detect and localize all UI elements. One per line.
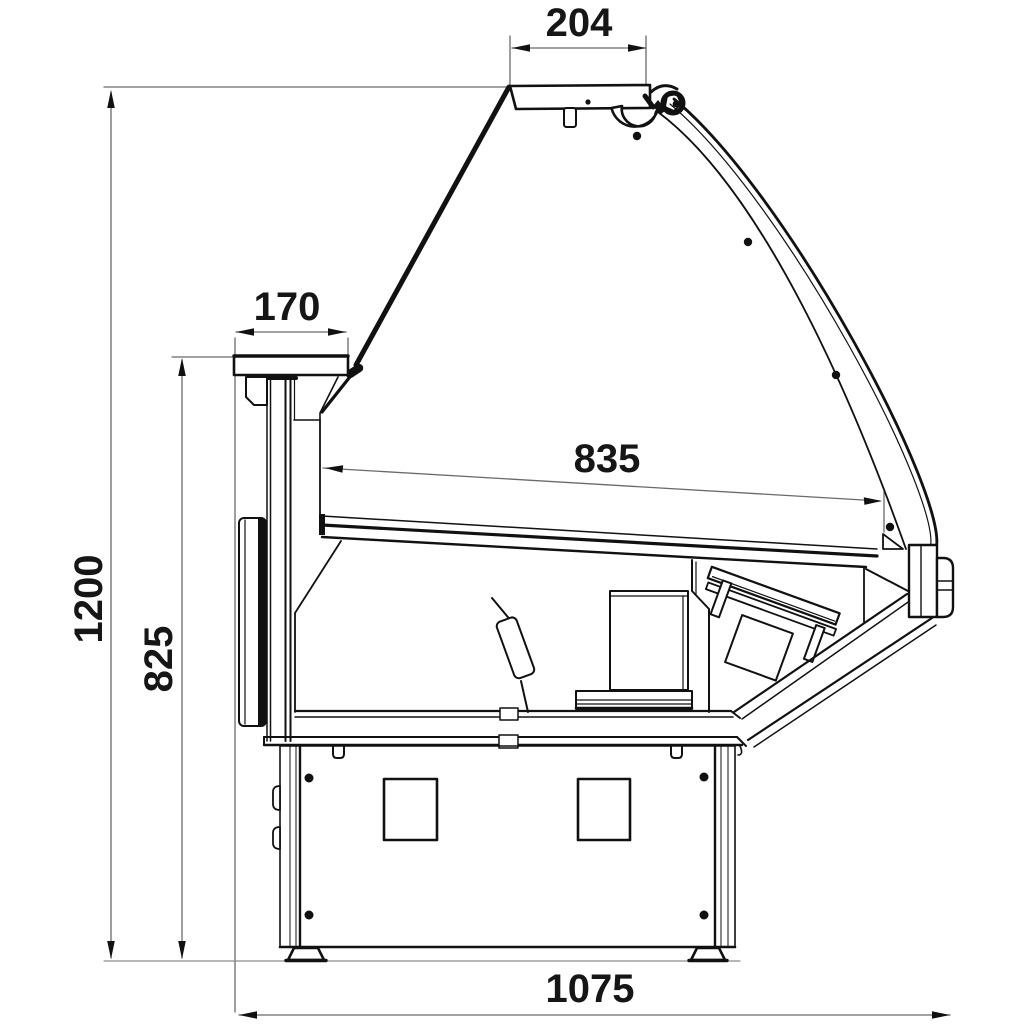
svg-text:204: 204	[546, 1, 613, 45]
svg-text:1075: 1075	[546, 967, 635, 1011]
svg-text:835: 835	[574, 437, 641, 481]
svg-text:825: 825	[137, 626, 181, 693]
svg-text:1200: 1200	[67, 555, 111, 644]
svg-text:170: 170	[254, 285, 321, 329]
